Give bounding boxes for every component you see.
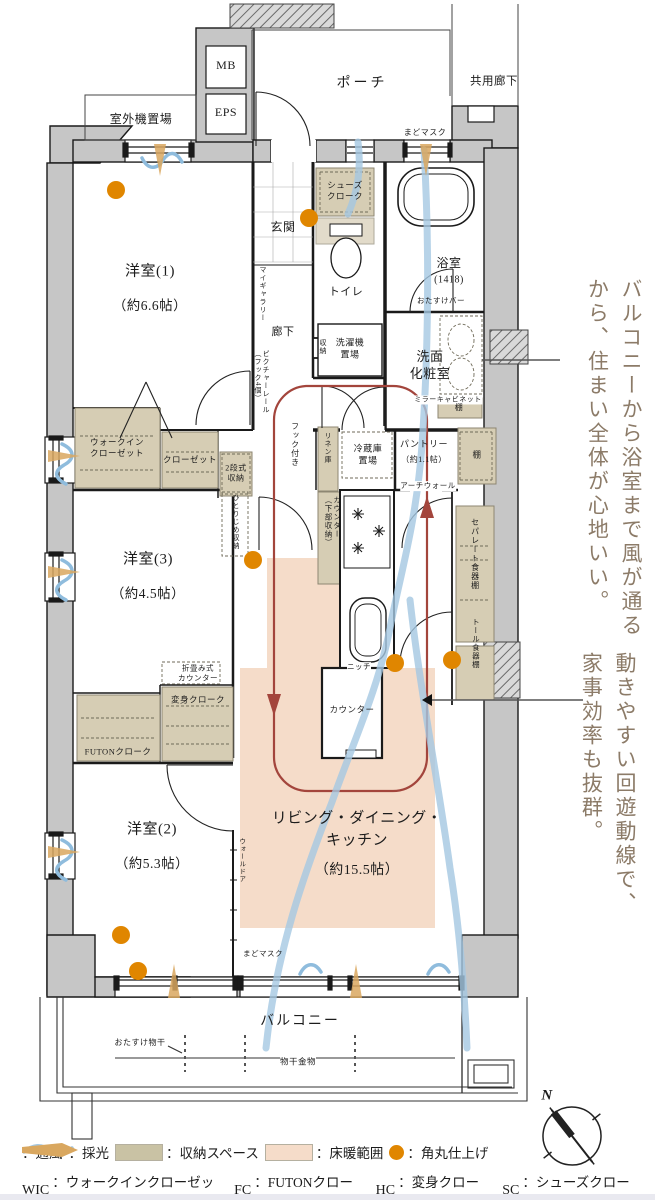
label-two-tier: 2段式 収納 (225, 464, 247, 485)
label-folding-counter: 折畳み式 カウンター (178, 663, 218, 683)
legend-corner: ：角丸仕上げ (389, 1142, 488, 1162)
label-bedroom3-size: （約4.5帖） (111, 585, 185, 603)
label-linen: リネン庫 (324, 432, 332, 464)
label-shoes-cloak: シューズ クローク (327, 180, 363, 202)
label-counter: カウンター (329, 704, 374, 715)
label-shared-corridor: 共用廊下 (470, 75, 518, 90)
label-closet: クローゼット (163, 454, 217, 465)
page-bottom-strip (0, 1194, 655, 1200)
label-niche: ニッチ (347, 662, 371, 672)
label-drying-helper: おたすけ物干 (115, 1038, 166, 1048)
label-counter-storage: カウンター （下部収納） (323, 496, 340, 588)
label-shelf-2: 棚 (472, 449, 481, 460)
label-ldk-size: （約15.5帖） (315, 862, 400, 880)
label-henshin-cloak: 変身クローク (171, 694, 225, 705)
label-bath-size: (1418) (434, 274, 464, 287)
label-eps: EPS (215, 105, 237, 121)
label-bedroom1: 洋室(1) (125, 262, 175, 282)
label-washer: 洗濯機 置場 (336, 337, 365, 360)
label-bedroom2-size: （約5.3帖） (115, 855, 189, 873)
label-porch: ポーチ (337, 75, 388, 93)
label-window-mask-top: まどマスク (404, 128, 447, 138)
legend-daylight: ：採光 (69, 1142, 110, 1162)
floor-plan-page: MB EPS 室外機置場 ポーチ 共用廊下 まどマスク 玄関 シューズ クローク… (0, 0, 655, 1200)
corner-dot-icon (389, 1145, 404, 1160)
label-picture-rail: ピクチャーレール （フック4個） (254, 350, 270, 432)
heating-swatch (265, 1144, 313, 1161)
label-outdoor-unit: 室外機置場 (110, 112, 173, 128)
label-tall-cupboard: トール食器棚 (471, 618, 480, 669)
label-mb: MB (216, 58, 236, 74)
label-wic: ウォークイン クローゼット (90, 437, 144, 459)
annotation-flow: 動きやすい回遊動線で、家事効率も抜群。 (574, 652, 641, 924)
washroom-door-gap (340, 426, 385, 434)
label-hall-storage: 収納 (319, 339, 327, 355)
label-entrance: 玄関 (270, 220, 295, 236)
label-futon-cloak: FUTONクローク (85, 746, 152, 757)
label-mirror-cabinet: ミラーキャビネット (414, 395, 482, 404)
label-my-gallery: マイギャラリー (259, 266, 267, 322)
label-shelf-1: 棚 (455, 403, 464, 413)
storage-swatch (115, 1144, 163, 1161)
label-bedroom2: 洋室(2) (127, 820, 177, 840)
legend-symbols-row: ：通風 ：採光 ：収納スペース ：床暖範囲 ：角丸仕上げ (22, 1142, 638, 1162)
label-fridge: 冷蔵庫 置場 (354, 443, 383, 466)
label-wall-door: ウォールドア (237, 838, 244, 883)
daylight-arrow-icon (22, 1142, 80, 1158)
label-toilet: トイレ (329, 285, 364, 299)
compass-north-label: N (541, 1086, 552, 1106)
label-hallway: 廊下 (272, 325, 295, 339)
label-bedroom1-size: （約6.6帖） (113, 297, 187, 315)
label-hitorijime: ひとりじめ収納 (232, 494, 240, 550)
legend-storage-label: ：収納スペース (166, 1142, 259, 1162)
label-hook: フック付き (290, 422, 299, 467)
label-separate-cupboard: セパレート食器棚 (470, 518, 479, 590)
label-bath: 浴室 (436, 256, 461, 272)
legend-storage: ：収納スペース (115, 1142, 259, 1162)
legend: ：通風 ：採光 ：収納スペース ：床暖範囲 ：角丸仕上げ WIC ：ウォークイン… (22, 1142, 638, 1200)
label-arch-wall: アーチウォール (400, 481, 456, 491)
label-ldk: リビング・ダイニング・ キッチン (272, 808, 443, 852)
legend-corner-label: ：角丸仕上げ (407, 1142, 488, 1162)
label-pantry-size: （約1.1帖） (401, 455, 447, 465)
label-window-mask-bottom: まどマスク (243, 949, 283, 959)
label-pantry: パントリー (400, 439, 448, 451)
label-drying-hardware: 物干金物 (280, 1056, 316, 1067)
label-balcony: バルコニー (260, 1013, 340, 1031)
label-washroom: 洗面 化粧室 (410, 349, 451, 383)
label-bedroom3: 洋室(3) (123, 550, 173, 570)
label-helper-bar: おたすけバー (417, 296, 465, 306)
annotation-comfort: バルコニーから浴室まで風が通るから、住まい全体が心地いい。 (580, 278, 647, 656)
legend-heating-label: ：床暖範囲 (316, 1142, 384, 1162)
legend-heating: ：床暖範囲 (265, 1142, 384, 1162)
